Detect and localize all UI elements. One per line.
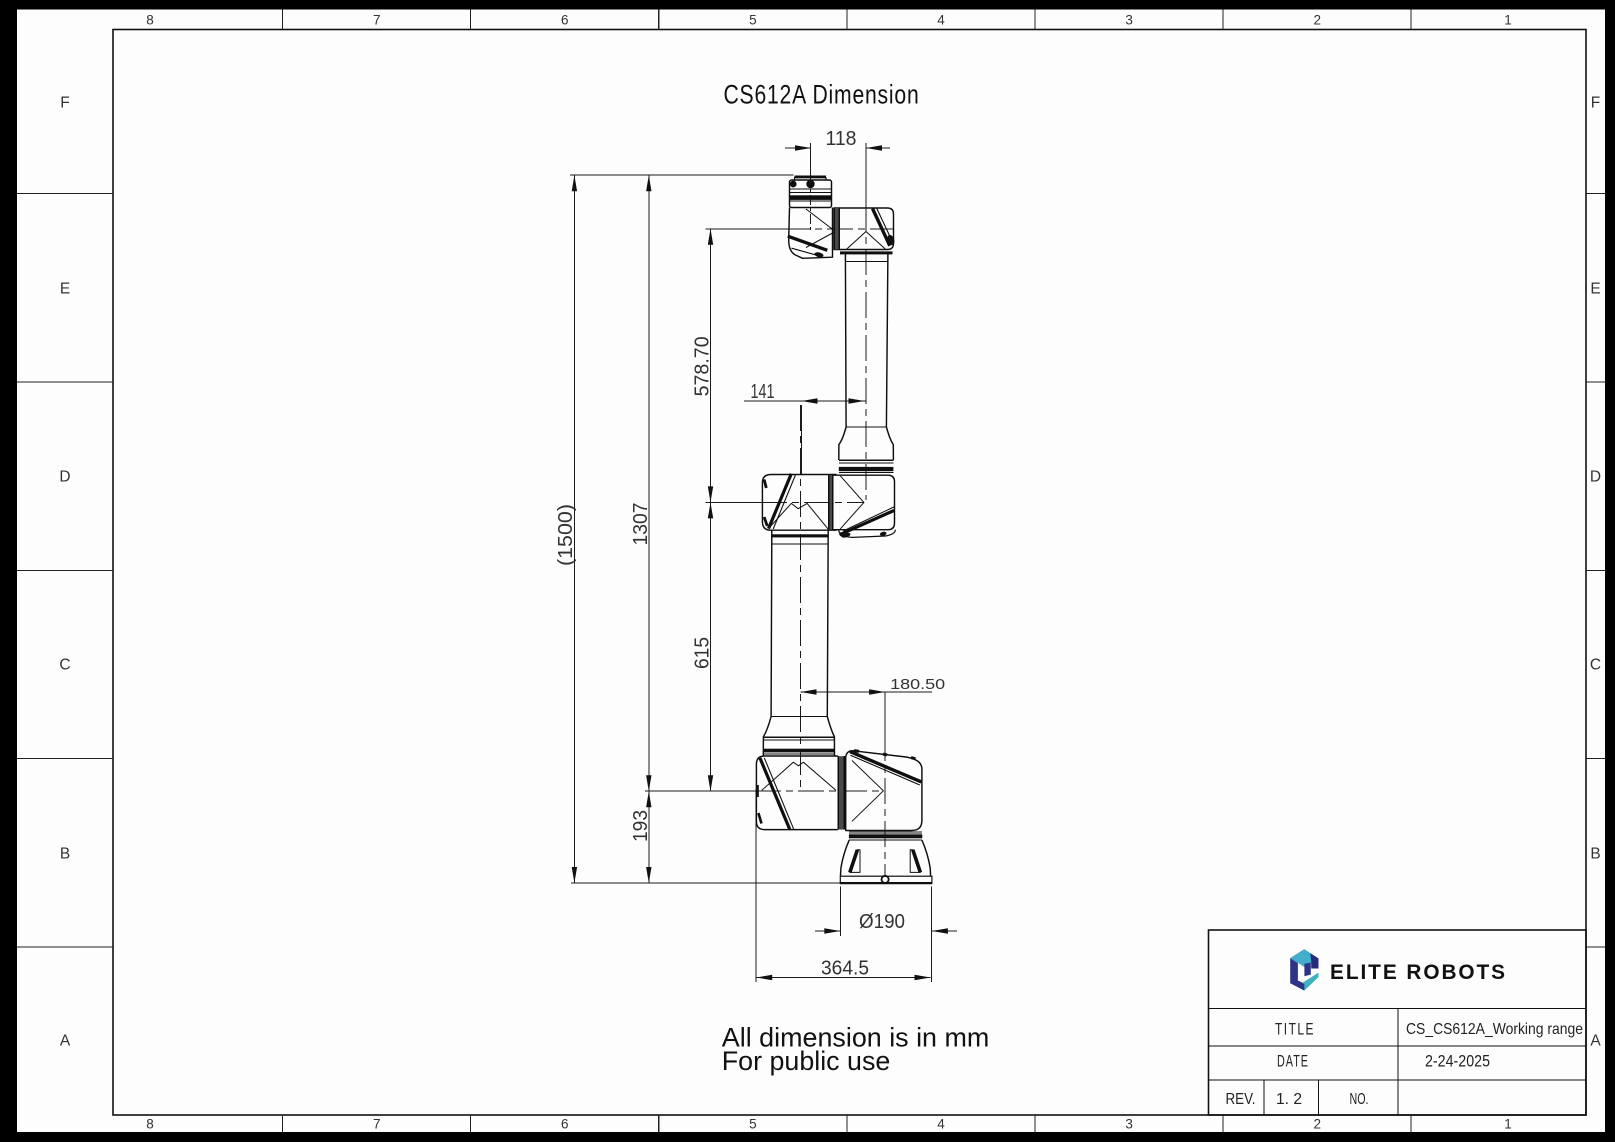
svg-text:615: 615 [692, 637, 714, 669]
svg-text:7: 7 [373, 1117, 381, 1132]
svg-text:NO.: NO. [1350, 1091, 1369, 1108]
svg-text:DATE: DATE [1277, 1053, 1309, 1071]
svg-text:REV.: REV. [1226, 1091, 1256, 1108]
svg-text:B: B [60, 846, 70, 863]
svg-text:5: 5 [749, 1117, 757, 1132]
svg-text:7: 7 [373, 13, 381, 28]
svg-text:2: 2 [1313, 13, 1321, 28]
svg-text:118: 118 [826, 128, 857, 150]
svg-text:(1500): (1500) [555, 504, 577, 566]
svg-text:A: A [1590, 1033, 1601, 1050]
svg-text:1: 1 [1504, 13, 1512, 28]
svg-text:F: F [60, 95, 69, 112]
svg-text:3: 3 [1125, 13, 1133, 28]
svg-text:A: A [60, 1033, 71, 1050]
svg-text:TITLE: TITLE [1275, 1021, 1315, 1039]
svg-text:B: B [1590, 846, 1600, 863]
svg-text:2: 2 [1313, 1117, 1321, 1132]
svg-text:CS_CS612A_Working range: CS_CS612A_Working range [1406, 1021, 1583, 1038]
svg-text:C: C [59, 657, 70, 674]
svg-text:8: 8 [146, 1117, 154, 1132]
svg-text:3: 3 [1125, 1117, 1133, 1132]
svg-text:6: 6 [561, 1117, 569, 1132]
svg-text:1: 1 [1504, 1117, 1512, 1132]
svg-text:CS612A Dimension: CS612A Dimension [724, 80, 920, 110]
svg-text:Ø190: Ø190 [859, 911, 905, 933]
svg-text:4: 4 [937, 13, 945, 28]
svg-text:193: 193 [630, 810, 652, 842]
svg-text:2-24-2025: 2-24-2025 [1425, 1052, 1490, 1071]
svg-text:6: 6 [561, 13, 569, 28]
svg-text:C: C [1590, 657, 1601, 674]
svg-text:4: 4 [937, 1117, 945, 1132]
svg-text:8: 8 [146, 13, 154, 28]
svg-text:1307: 1307 [630, 503, 652, 546]
svg-text:E: E [1590, 281, 1600, 298]
svg-text:D: D [1590, 469, 1601, 486]
svg-text:5: 5 [749, 13, 757, 28]
svg-text:E: E [60, 281, 70, 298]
svg-text:578.70: 578.70 [692, 336, 714, 396]
svg-text:180.50: 180.50 [890, 676, 945, 693]
svg-text:F: F [1591, 95, 1600, 112]
svg-text:1. 2: 1. 2 [1276, 1091, 1302, 1108]
svg-text:141: 141 [751, 381, 775, 403]
svg-text:D: D [59, 469, 70, 486]
svg-text:364.5: 364.5 [821, 958, 869, 980]
svg-text:ELITE ROBOTS: ELITE ROBOTS [1330, 960, 1507, 984]
svg-text:For public use: For public use [722, 1046, 891, 1076]
